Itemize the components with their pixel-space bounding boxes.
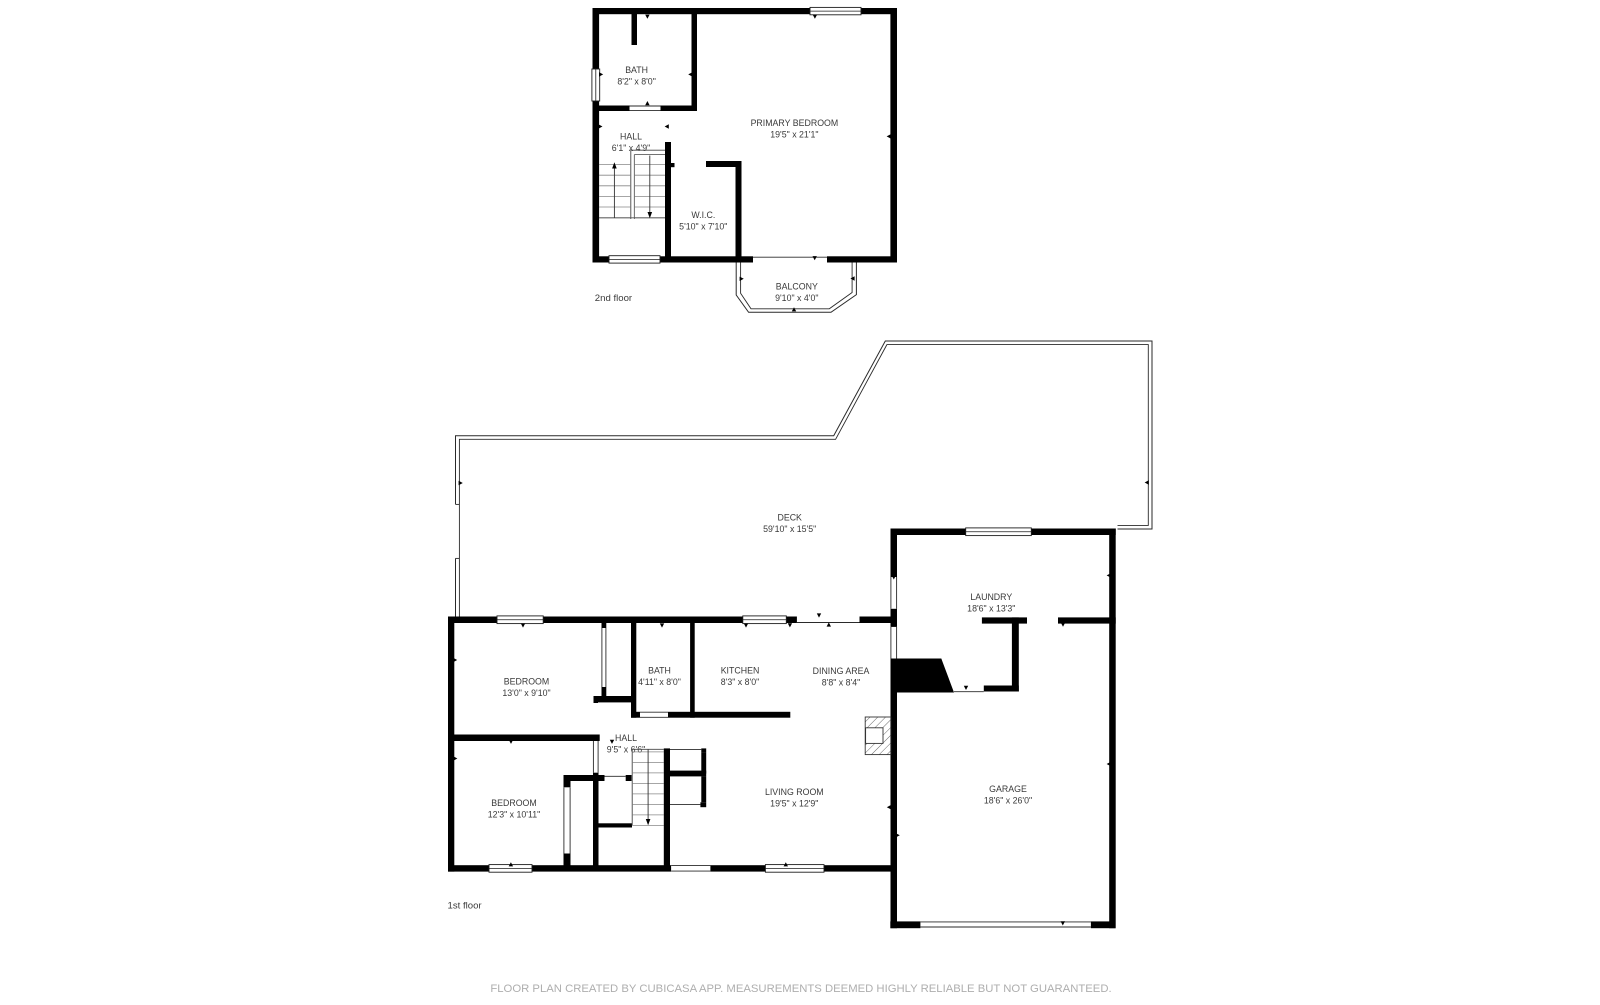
svg-text:12'3" x 10'11": 12'3" x 10'11" [488,809,541,819]
svg-text:18'6" x 13'3": 18'6" x 13'3" [967,603,1015,613]
svg-text:19'5" x 21'1": 19'5" x 21'1" [770,130,818,140]
svg-text:18'6" x 26'0": 18'6" x 26'0" [984,795,1032,805]
svg-text:8'3" x 8'0": 8'3" x 8'0" [721,677,759,687]
svg-text:BEDROOM: BEDROOM [504,677,549,687]
svg-text:4'11" x 8'0": 4'11" x 8'0" [638,677,681,687]
svg-text:BATH: BATH [625,65,648,75]
svg-text:FLOOR PLAN CREATED BY CUBICASA: FLOOR PLAN CREATED BY CUBICASA APP. MEAS… [490,983,1111,995]
svg-text:LIVING ROOM: LIVING ROOM [765,787,824,797]
svg-text:9'10" x 4'0": 9'10" x 4'0" [775,293,818,303]
svg-text:8'8" x 8'4": 8'8" x 8'4" [822,677,860,687]
svg-text:1st floor: 1st floor [448,901,483,912]
svg-text:19'5" x 12'9": 19'5" x 12'9" [770,798,818,808]
svg-text:DINING AREA: DINING AREA [813,666,870,676]
svg-text:5'10" x 7'10": 5'10" x 7'10" [679,221,727,231]
svg-text:2nd floor: 2nd floor [595,293,633,304]
svg-text:HALL: HALL [615,733,637,743]
svg-text:KITCHEN: KITCHEN [721,666,760,676]
svg-text:BATH: BATH [648,666,671,676]
svg-text:DECK: DECK [777,513,802,523]
svg-text:BALCONY: BALCONY [776,282,818,292]
svg-text:BEDROOM: BEDROOM [491,798,536,808]
svg-text:59'10" x 15'5": 59'10" x 15'5" [763,524,816,534]
svg-text:W.I.C.: W.I.C. [691,210,715,220]
svg-text:LAUNDRY: LAUNDRY [970,592,1012,602]
svg-text:GARAGE: GARAGE [989,784,1027,794]
svg-text:13'0" x 9'10": 13'0" x 9'10" [502,688,550,698]
svg-text:PRIMARY BEDROOM: PRIMARY BEDROOM [751,118,839,128]
svg-text:8'2" x 8'0": 8'2" x 8'0" [617,76,655,86]
svg-text:HALL: HALL [620,132,642,142]
